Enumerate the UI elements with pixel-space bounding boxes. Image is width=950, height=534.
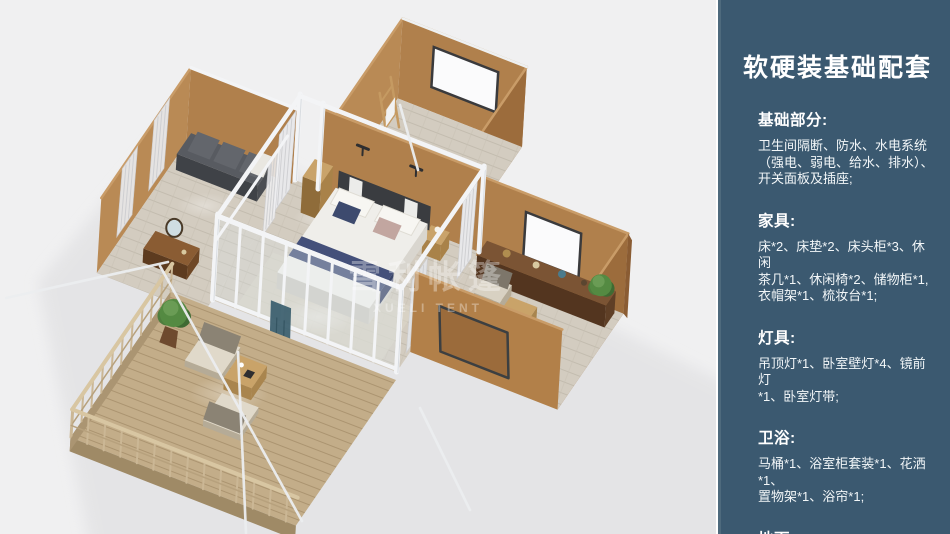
section-furniture: 家具: 床*2、床垫*2、床头柜*3、休闲 茶几*1、休闲椅*2、储物柜*1, … [758,209,934,305]
info-sidebar: 软硬装基础配套 基础部分: 卫生间隔断、防水、水电系统 （强电、弱电、给水、排水… [716,0,950,534]
slide-page: 雪利帐篷 XUELI TENT 软硬装基础配套 基础部分: 卫生间隔断、防水、水… [0,0,950,534]
section-lighting: 灯具: 吊顶灯*1、卧室壁灯*4、镜前灯 *1、卧室灯带; [758,326,934,406]
sidebar-title: 软硬装基础配套 [718,0,950,84]
section-body: 床*2、床垫*2、床头柜*3、休闲 茶几*1、休闲椅*2、储物柜*1, 衣帽架*… [758,239,934,305]
section-heading: 地面: [758,527,934,534]
section-body: 吊顶灯*1、卧室壁灯*4、镜前灯 *1、卧室灯带; [758,356,934,406]
section-basics: 基础部分: 卫生间隔断、防水、水电系统 （强电、弱电、给水、排水）、 开关面板及… [758,108,934,188]
section-heading: 家具: [758,209,934,231]
floorplan-3d-render: 雪利帐篷 XUELI TENT [0,0,716,534]
section-heading: 灯具: [758,326,934,348]
sidebar-sections: 基础部分: 卫生间隔断、防水、水电系统 （强电、弱电、给水、排水）、 开关面板及… [718,108,950,534]
section-heading: 卫浴: [758,426,934,448]
section-body: 马桶*1、浴室柜套装*1、花洒*1、 置物架*1、浴帘*1; [758,456,934,506]
section-floor: 地面: 强化木地板、卫生间防滑防潮石 塑板; [758,527,934,534]
section-body: 卫生间隔断、防水、水电系统 （强电、弱电、给水、排水）、 开关面板及插座; [758,138,934,188]
section-heading: 基础部分: [758,108,934,130]
floorplan-scene-svg [0,0,716,534]
section-bathroom: 卫浴: 马桶*1、浴室柜套装*1、花洒*1、 置物架*1、浴帘*1; [758,426,934,506]
